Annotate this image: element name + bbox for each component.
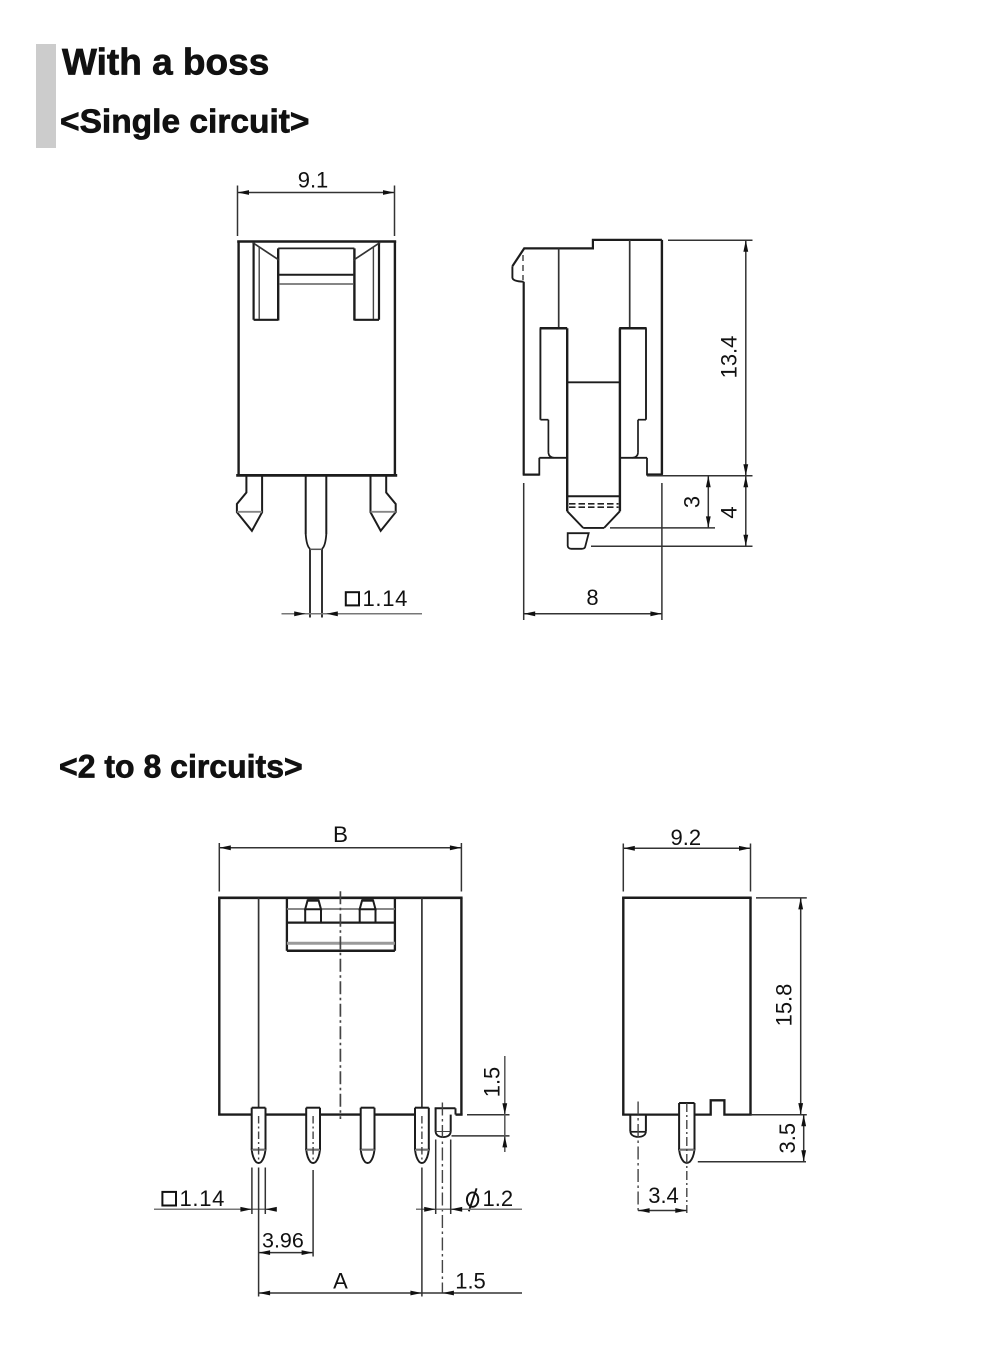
svg-text:3.4: 3.4 [648, 1183, 679, 1208]
svg-text:9.1: 9.1 [298, 168, 329, 193]
svg-text:3.96: 3.96 [262, 1229, 304, 1253]
svg-text:1.5: 1.5 [455, 1269, 486, 1294]
svg-text:1.14: 1.14 [180, 1186, 226, 1211]
svg-text:<2 to 8 circuits>: <2 to 8 circuits> [59, 749, 303, 785]
svg-text:3: 3 [680, 496, 705, 508]
svg-text:9.2: 9.2 [671, 825, 702, 850]
svg-text:8: 8 [586, 585, 598, 610]
svg-text:With a boss: With a boss [62, 42, 269, 83]
svg-text:13.4: 13.4 [717, 336, 742, 379]
svg-text:4: 4 [717, 506, 742, 518]
svg-text:A: A [333, 1269, 348, 1294]
svg-text:<Single circuit>: <Single circuit> [60, 104, 309, 141]
svg-text:B: B [333, 822, 348, 847]
svg-text:3.5: 3.5 [775, 1123, 800, 1154]
svg-text:1.14: 1.14 [363, 586, 409, 611]
svg-text:15.8: 15.8 [772, 984, 797, 1027]
svg-text:1.5: 1.5 [480, 1067, 505, 1098]
svg-text:1.2: 1.2 [483, 1186, 514, 1211]
